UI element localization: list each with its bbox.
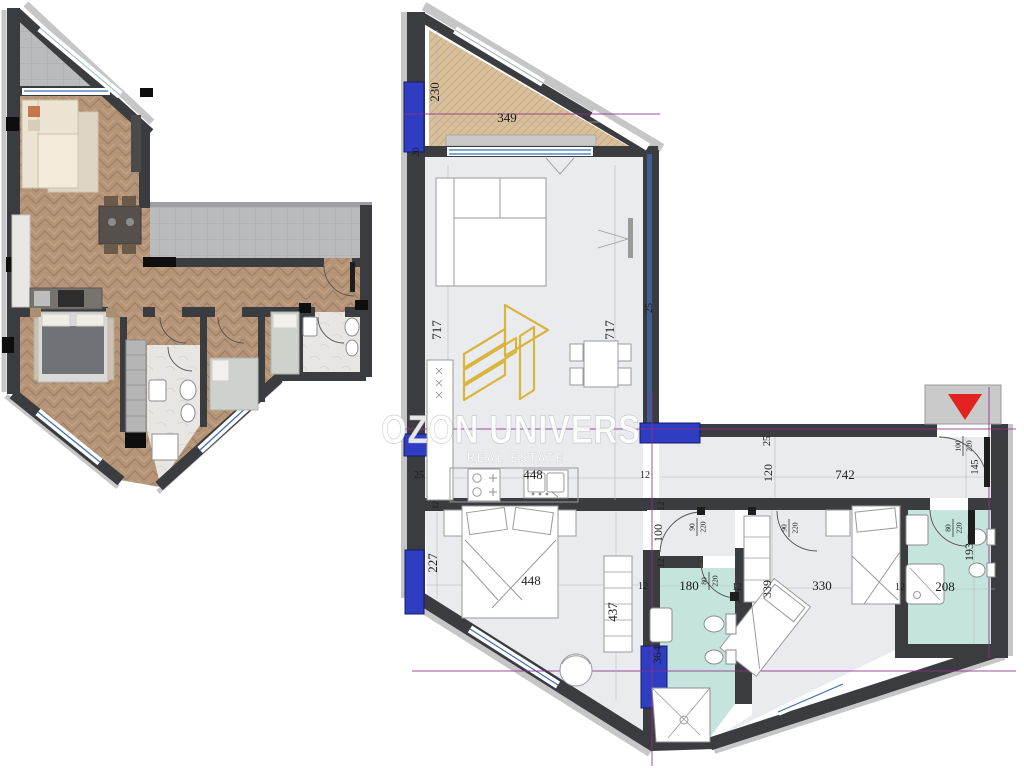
svg-text:220: 220	[711, 575, 720, 587]
svg-text:100: 100	[954, 440, 963, 452]
dim-living-wall-right: 25	[644, 303, 655, 313]
dim-hall-wall-top: 12	[656, 502, 666, 511]
watermark-tagline: REAL ESTATE	[467, 450, 565, 465]
dim-hall-wall-bottom: 12	[656, 559, 666, 568]
left-plan	[2, 4, 372, 492]
left-wall-east	[360, 205, 372, 377]
double-bed-icon	[30, 308, 117, 382]
right-plan: 230 349 20 717 717 25 25 448 12 12 25 12…	[401, 6, 1016, 766]
dim-terrace-height: 230	[427, 82, 442, 102]
stove-icon	[468, 469, 500, 501]
single-bed-icon	[210, 358, 258, 410]
svg-text:220: 220	[791, 522, 800, 534]
dim-kitchen-width: 448	[523, 467, 543, 482]
svg-text:90: 90	[688, 523, 697, 531]
dim-kitchen-wall-left: 25	[414, 470, 424, 481]
dim-bath1-length: 364	[650, 646, 664, 664]
hall-floor	[660, 510, 735, 556]
dim-bath2-width: 208	[935, 579, 955, 594]
svg-text:220: 220	[699, 521, 708, 533]
dim-bedroom2-side: 339	[760, 580, 774, 598]
dim-bedroom1-depth: 437	[605, 602, 620, 622]
tv-console-icon	[131, 115, 141, 172]
dim-kitchen-wall-thickness: 12	[431, 501, 440, 509]
svg-text:220: 220	[955, 522, 964, 534]
dim-bedroom2-wall: 12	[895, 582, 905, 593]
dim-bath1-wall-right: 12	[732, 582, 742, 593]
window-living	[447, 147, 593, 156]
dim-entry-clearance: 145	[970, 460, 981, 475]
terrace-floor	[429, 30, 628, 146]
svg-text:220: 220	[965, 440, 974, 452]
dim-kitchen-wall-right: 12	[640, 470, 650, 481]
watermark-brand: OZON UNIVERS	[381, 407, 640, 452]
bed1-cad-icon	[444, 506, 576, 618]
dim-bedroom2-width: 330	[812, 578, 832, 593]
dim-terrace-parapet: 20	[411, 147, 421, 157]
dim-corridor-width: 742	[835, 467, 855, 482]
dim-bedroom1-side: 227	[425, 553, 440, 573]
dim-bath2-length: 193	[962, 543, 976, 561]
left-walkway	[150, 207, 372, 258]
floorplan-canvas: 230 349 20 717 717 25 25 448 12 12 25 12…	[0, 0, 1024, 768]
floorplan-sheet: 230 349 20 717 717 25 25 448 12 12 25 12…	[0, 0, 1024, 768]
dim-bedroom1-width: 448	[521, 573, 541, 588]
dim-terrace-width: 349	[497, 110, 517, 125]
sofa-cad-icon	[436, 178, 546, 286]
left-wall-west	[7, 8, 20, 394]
sofa-icon	[22, 100, 78, 188]
dim-corridor-height: 120	[761, 464, 775, 482]
svg-text:80: 80	[700, 577, 709, 585]
svg-text:90: 90	[780, 524, 789, 532]
dim-living-left: 717	[429, 320, 444, 340]
dim-corridor-wall: 25	[762, 436, 773, 446]
armchair-cad-icon	[560, 654, 592, 686]
dim-hall-width: 100	[651, 524, 665, 542]
wardrobe-icon	[126, 340, 146, 432]
single-bed-2-icon	[271, 312, 299, 374]
dim-bath1-wall-left: 12	[638, 581, 648, 592]
corridor-floor	[659, 437, 991, 498]
dim-bath1-width: 180	[679, 578, 699, 593]
dim-living-right: 717	[602, 320, 617, 340]
svg-text:80: 80	[944, 524, 953, 532]
